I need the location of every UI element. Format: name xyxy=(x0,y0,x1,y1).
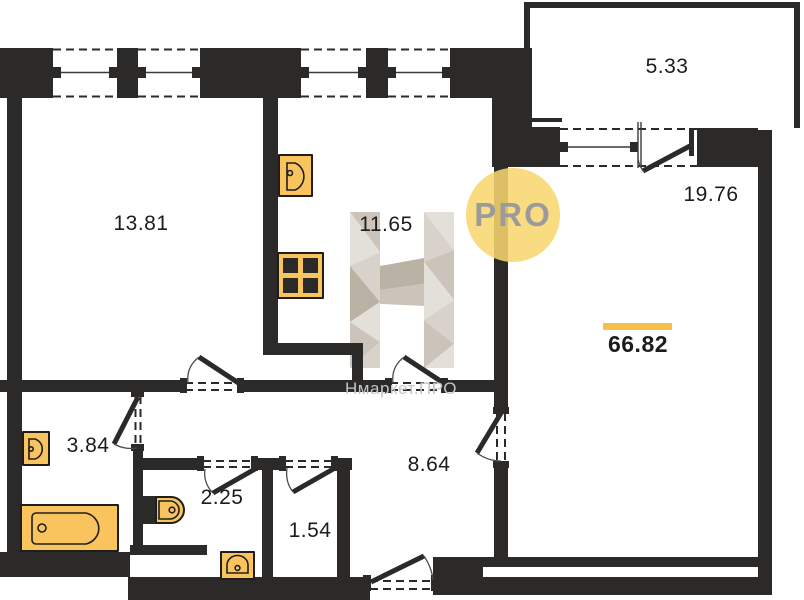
total-area-bar xyxy=(603,323,672,330)
toilet-icon xyxy=(143,496,184,524)
window-symbol xyxy=(301,50,366,97)
wc-area-label: 2.25 xyxy=(201,486,244,510)
total-area-label: 66.82 xyxy=(608,332,668,356)
window-symbol xyxy=(53,50,117,97)
door-symbol-entry xyxy=(363,556,439,591)
watermark-brand-text: Нмаркет.ПРО xyxy=(345,379,457,399)
balcony-window-door xyxy=(560,122,697,171)
pro-badge: PRO xyxy=(466,168,560,262)
closet-area-label: 1.54 xyxy=(289,519,332,543)
door-symbol-room xyxy=(180,357,244,393)
pro-badge-text: PRO xyxy=(466,168,560,262)
floor-plan-page: 13.81 11.65 5.33 19.76 3.84 2.25 1.54 8.… xyxy=(0,0,804,600)
bathroom-area-label: 3.84 xyxy=(67,434,110,458)
washbasin-icon xyxy=(23,432,49,465)
living-room-area-label: 19.76 xyxy=(683,183,738,207)
floor-plan-drawing xyxy=(0,0,804,600)
hallway-area-label: 8.64 xyxy=(408,453,451,477)
stove-icon xyxy=(278,253,323,298)
room-area-label: 13.81 xyxy=(113,212,168,236)
kitchen-area-label: 11.65 xyxy=(359,213,413,237)
window-symbol xyxy=(138,50,200,97)
door-symbol-living-room xyxy=(477,407,509,468)
door-symbol-closet xyxy=(279,456,338,492)
door-symbol-bathroom xyxy=(114,390,144,451)
balcony-area-label: 5.33 xyxy=(646,55,689,79)
hall-washbasin-icon xyxy=(221,552,254,579)
window-symbol xyxy=(388,50,450,97)
bathtub-icon xyxy=(21,505,118,551)
kitchen-sink-icon xyxy=(279,155,312,196)
